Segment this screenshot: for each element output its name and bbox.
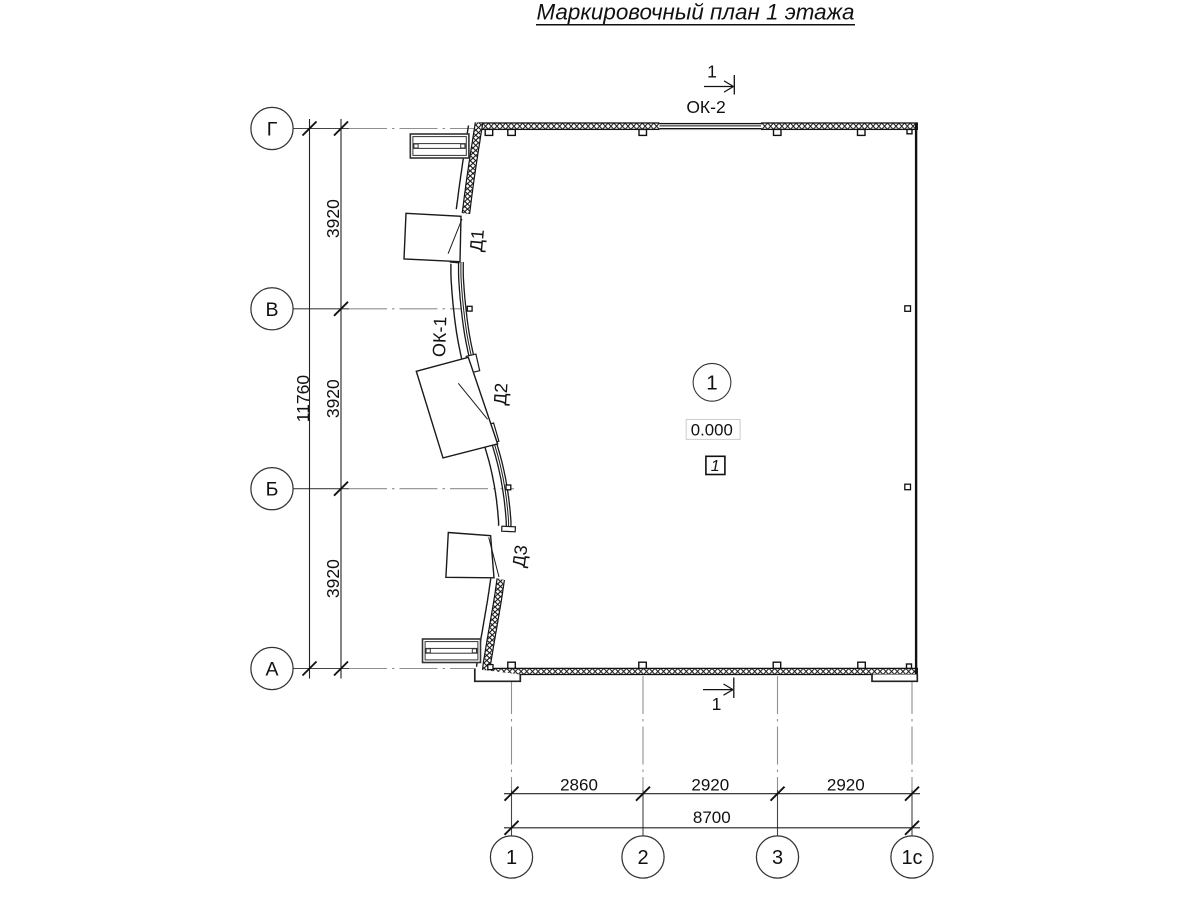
svg-text:Б: Б (266, 479, 279, 501)
svg-text:2: 2 (637, 847, 648, 869)
svg-text:Д2: Д2 (490, 382, 512, 406)
svg-text:1: 1 (707, 61, 717, 81)
svg-text:Д3: Д3 (509, 544, 532, 569)
svg-text:2920: 2920 (827, 776, 865, 795)
svg-text:3920: 3920 (323, 379, 343, 418)
svg-text:1: 1 (706, 372, 717, 395)
svg-text:3920: 3920 (323, 199, 343, 238)
svg-text:1: 1 (711, 458, 720, 475)
svg-text:В: В (265, 299, 278, 321)
svg-text:11760: 11760 (293, 375, 313, 423)
svg-text:ОК-1: ОК-1 (429, 316, 450, 357)
svg-text:2860: 2860 (560, 776, 598, 795)
svg-text:Г: Г (267, 119, 278, 141)
svg-text:1: 1 (506, 847, 517, 869)
svg-text:Маркировочный план 1 этажа: Маркировочный план 1 этажа (537, 0, 855, 25)
svg-text:Д1: Д1 (466, 229, 488, 253)
svg-text:3920: 3920 (323, 559, 343, 598)
svg-text:0.000: 0.000 (691, 420, 733, 439)
svg-text:ОК-2: ОК-2 (686, 97, 725, 117)
svg-text:8700: 8700 (693, 808, 731, 827)
svg-text:3: 3 (772, 847, 783, 869)
svg-text:1с: 1с (901, 847, 922, 869)
svg-text:А: А (265, 659, 278, 681)
svg-text:1: 1 (712, 694, 722, 714)
svg-text:2920: 2920 (691, 776, 729, 795)
